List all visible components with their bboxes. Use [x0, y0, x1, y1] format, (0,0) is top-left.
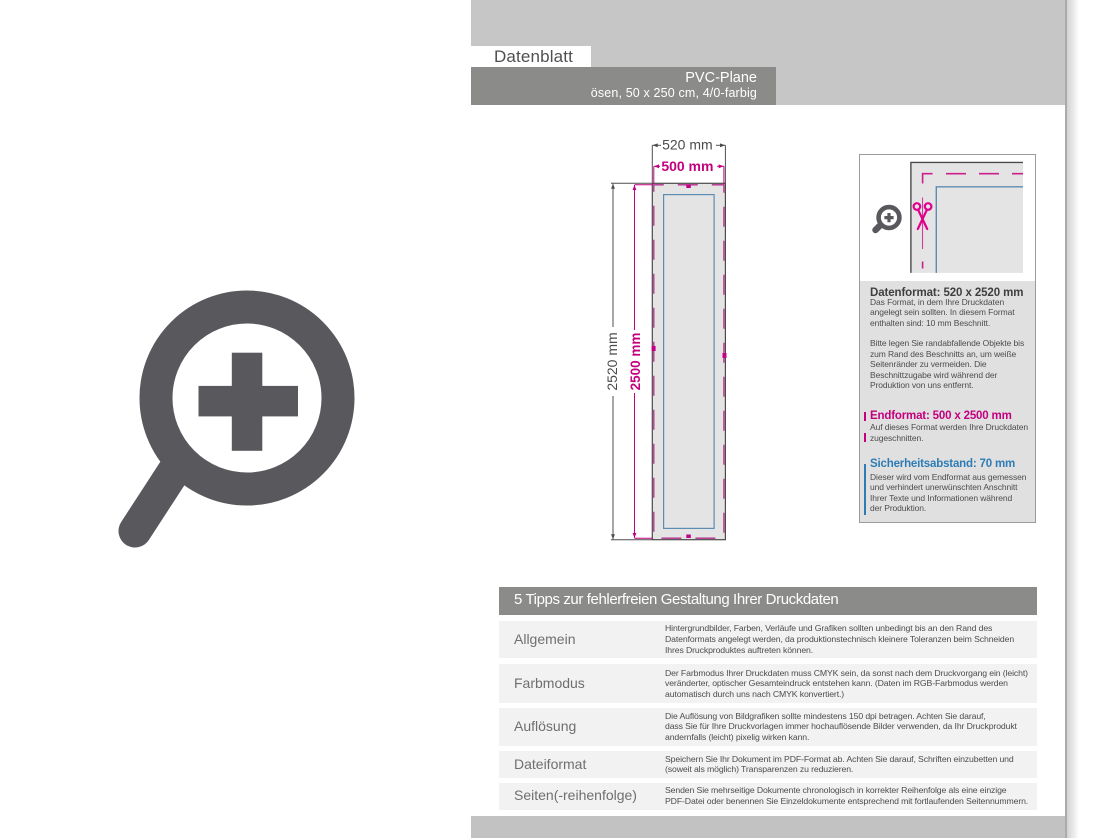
svg-text:500 mm: 500 mm [661, 158, 713, 174]
svg-text:2520 mm: 2520 mm [604, 332, 620, 390]
svg-text:2500 mm: 2500 mm [628, 333, 643, 391]
svg-text:520 mm: 520 mm [662, 136, 713, 152]
